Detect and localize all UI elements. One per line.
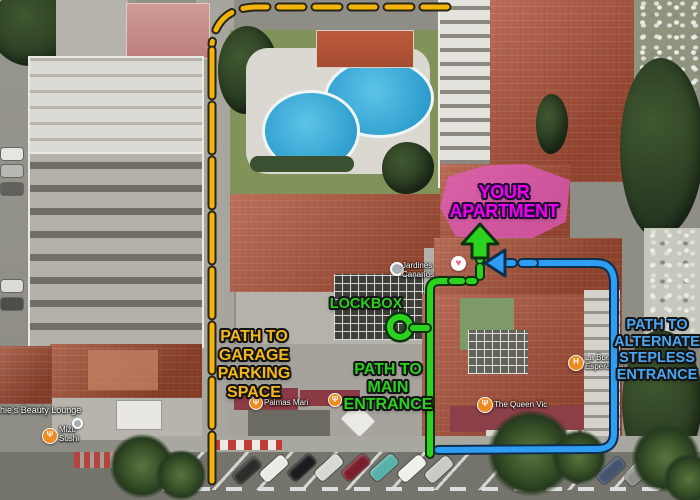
garage-path-label: PATH TO GARAGE PARKING SPACE <box>203 328 305 402</box>
your-apartment-line2: APARTMENT <box>438 202 570 221</box>
garage-label-line: GARAGE <box>203 347 305 366</box>
hotel-glyph: H <box>573 357 579 366</box>
palm-tree <box>156 450 206 500</box>
warehouse-roof-lower <box>28 152 204 348</box>
alternate-entrance-label: PATH TO ALTERNATE STEPLESS ENTRANCE <box>612 317 700 383</box>
poi-sophies-beauty-lounge: Sophie's Beauty Lounge <box>0 405 104 415</box>
restaurant-glyph: Ψ <box>47 430 53 439</box>
restaurant-marker-icon: Ψ <box>477 397 493 413</box>
inner-courtyard <box>468 330 528 374</box>
parked-car <box>1 148 23 160</box>
restaurant-marker-icon: Ψ <box>42 428 58 444</box>
parked-car <box>1 165 23 177</box>
warehouse-roof-upper <box>28 56 204 156</box>
alt-label-line: ENTRANCE <box>612 367 700 384</box>
red-white-curb <box>212 440 282 450</box>
restaurant-glyph: Ψ <box>482 399 488 408</box>
poi-the-queen-vic: The Queen Vic <box>494 400 554 409</box>
heart-glyph: ♥ <box>456 258 462 269</box>
alt-label-line: STEPLESS <box>612 350 700 367</box>
white-shed <box>116 400 162 430</box>
main-entrance-label: PATH TO MAIN ENTRANCE <box>338 361 438 414</box>
garage-label-line: SPACE <box>203 384 305 403</box>
right-facade-balconies <box>438 0 494 188</box>
dark-roof-block <box>248 410 330 436</box>
alt-label-line: ALTERNATE <box>612 334 700 351</box>
left-bottom-red-roof <box>0 346 52 404</box>
garage-label-line: PARKING <box>203 365 305 384</box>
your-apartment-label: YOUR APARTMENT <box>438 183 570 221</box>
palm-tree <box>664 454 700 500</box>
location-dot-icon <box>72 418 83 429</box>
hedge-row <box>250 156 354 172</box>
parked-car <box>1 183 23 195</box>
main-label-line: PATH TO <box>338 361 438 379</box>
annotated-satellite-map: Jardines Canarios ♥ H La Buena Esperanza… <box>0 0 700 500</box>
pool-building-roof <box>316 30 414 68</box>
alt-label-line: PATH TO <box>612 317 700 334</box>
grey-roof-top-left <box>56 0 128 58</box>
main-label-line: ENTRANCE <box>338 396 438 414</box>
palm-tree <box>552 430 606 484</box>
trees-right-upper <box>620 58 700 238</box>
poi-jardines-canarios: Jardines Canarios <box>402 261 452 279</box>
left-mid-roof-band <box>88 350 158 390</box>
lockbox-label: LOCKBOX <box>328 296 404 312</box>
your-apartment-line1: YOUR <box>438 183 570 202</box>
hotel-marker-icon: H <box>568 355 584 371</box>
main-label-line: MAIN <box>338 379 438 397</box>
pink-building-top-left <box>126 3 210 59</box>
right-upper-red-roofs <box>490 0 636 182</box>
heart-favorite-icon: ♥ <box>451 256 466 271</box>
parked-car <box>1 280 23 292</box>
parked-car <box>1 298 23 310</box>
road-center-dashes <box>162 487 700 491</box>
garage-label-line: PATH TO <box>203 328 305 347</box>
